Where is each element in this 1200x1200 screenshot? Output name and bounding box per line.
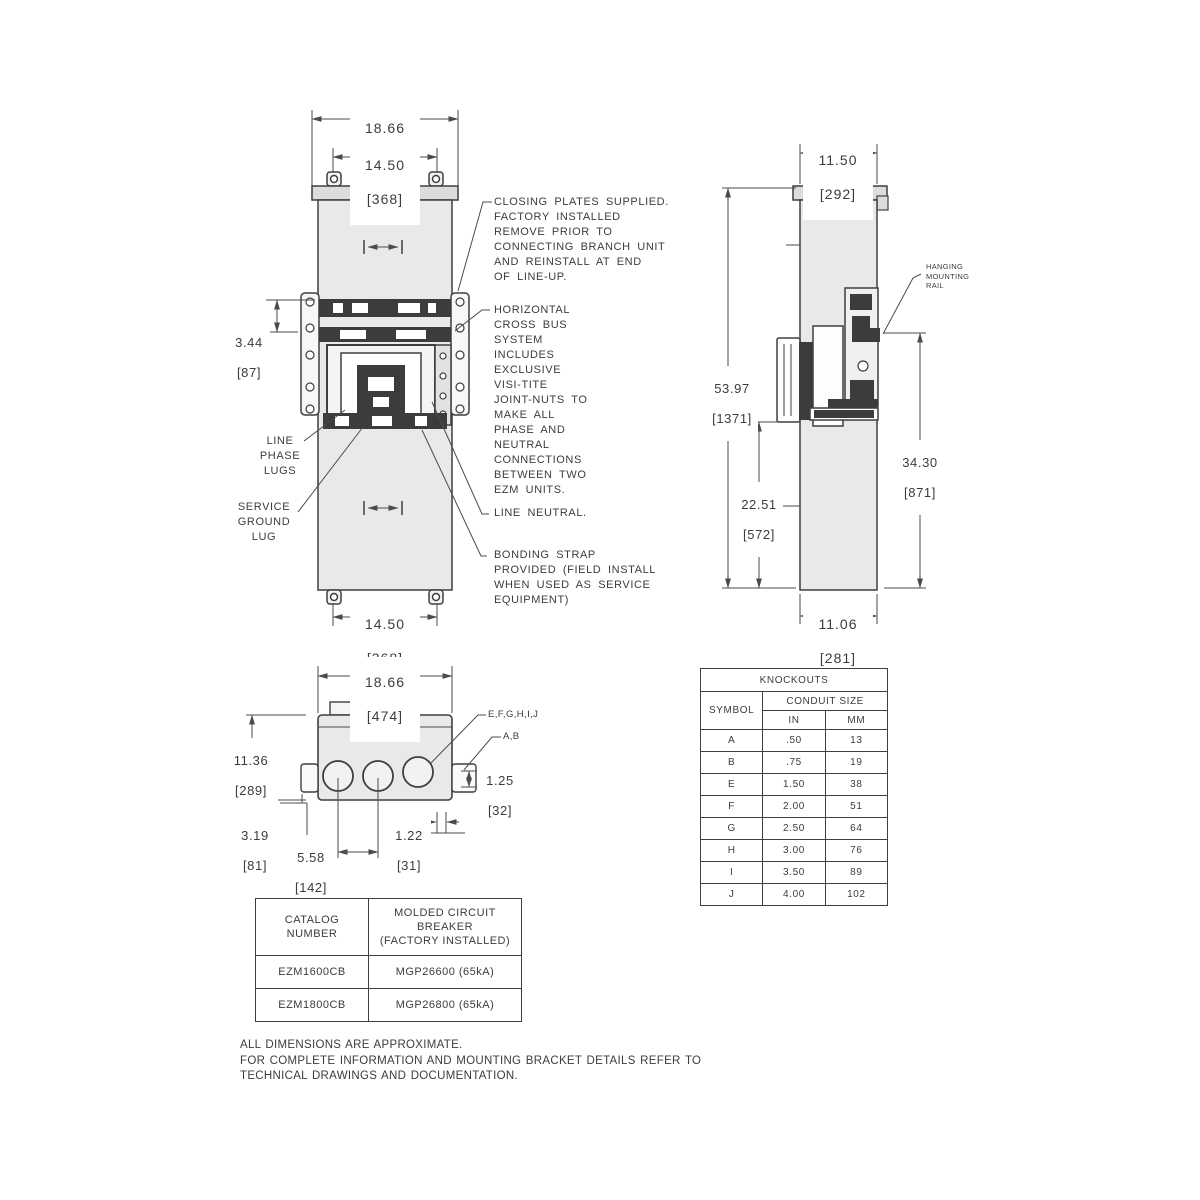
dim-inches: 34.30 <box>896 455 944 470</box>
dim-inches: 11.50 <box>803 152 873 169</box>
cell-in: 2.50 <box>763 818 825 840</box>
front-lug-dimension: 3.44 [87] <box>228 320 270 395</box>
cell-symbol: I <box>701 862 763 884</box>
bonding-strap-annotation: BONDING STRAP PROVIDED (FIELD INSTALL WH… <box>494 548 679 608</box>
topview-depth-dimension: 11.36 [289] <box>224 738 278 813</box>
topview-gap-dimension: 1.22 [31] <box>387 813 431 888</box>
dim-inches: 3.19 <box>233 828 277 843</box>
dim-inches: 18.66 <box>350 120 420 137</box>
cell-symbol: J <box>701 884 763 906</box>
table-row: EZM1600CB MGP26600 (65kA) <box>256 956 522 989</box>
side-depth-top-dimension: 11.50 [292] <box>803 135 873 220</box>
table-row: J 4.00 102 <box>701 884 888 906</box>
dim-mm: [281] <box>803 650 873 667</box>
table-row: H 3.00 76 <box>701 840 888 862</box>
dim-mm: [87] <box>228 365 270 380</box>
cell-mm: 102 <box>825 884 887 906</box>
line-phase-lugs-label: LINE PHASE LUGS <box>252 434 308 479</box>
col-header-symbol: SYMBOL <box>701 692 763 730</box>
line-neutral-annotation: LINE NEUTRAL. <box>494 506 614 521</box>
cell-mm: 38 <box>825 774 887 796</box>
side-rail-dimension: 34.30 [871] <box>896 440 944 515</box>
dim-inches: 53.97 <box>706 381 758 396</box>
cell-in: 3.00 <box>763 840 825 862</box>
cell-catalog-number: EZM1600CB <box>256 956 369 989</box>
knockouts-table: KNOCKOUTS SYMBOL CONDUIT SIZE IN MM A .5… <box>700 668 888 906</box>
dim-inches: 1.25 <box>482 773 518 788</box>
cell-in: 1.50 <box>763 774 825 796</box>
col-header-in: IN <box>763 711 825 730</box>
dim-inches: 11.36 <box>224 753 278 768</box>
table-row: A .50 13 <box>701 730 888 752</box>
cell-symbol: A <box>701 730 763 752</box>
cell-catalog-number: EZM1800CB <box>256 989 369 1022</box>
col-header-conduit-size: CONDUIT SIZE <box>763 692 888 711</box>
table-row: B .75 19 <box>701 752 888 774</box>
knockouts-title-row: KNOCKOUTS <box>701 669 888 692</box>
service-ground-lug-label: SERVICE GROUND LUG <box>230 500 298 545</box>
cell-in: .50 <box>763 730 825 752</box>
cross-bus-annotation: HORIZONTAL CROSS BUS SYSTEM INCLUDES EXC… <box>494 303 614 498</box>
topview-width-dimension: 18.66 [474] <box>350 657 420 742</box>
cell-in: .75 <box>763 752 825 774</box>
table-row: F 2.00 51 <box>701 796 888 818</box>
dim-inches: 3.44 <box>228 335 270 350</box>
dim-mm: [32] <box>482 803 518 818</box>
table-row: G 2.50 64 <box>701 818 888 840</box>
col-header-mm: MM <box>825 711 887 730</box>
col-header-breaker: MOLDED CIRCUIT BREAKER (FACTORY INSTALLE… <box>369 899 522 956</box>
catalog-table: CATALOG NUMBER MOLDED CIRCUIT BREAKER (F… <box>255 898 522 1022</box>
table-row: E 1.50 38 <box>701 774 888 796</box>
cell-breaker: MGP26600 (65kA) <box>369 956 522 989</box>
dim-inches: 11.06 <box>803 616 873 633</box>
dim-mm: [81] <box>233 858 277 873</box>
dim-inches: 1.22 <box>387 828 431 843</box>
dim-mm: [142] <box>287 880 335 895</box>
cell-symbol: B <box>701 752 763 774</box>
cell-mm: 19 <box>825 752 887 774</box>
dim-inches: 18.66 <box>350 674 420 691</box>
side-lower-dimension: 22.51 [572] <box>735 482 783 557</box>
dim-inches: 5.58 <box>287 850 335 865</box>
cell-mm: 76 <box>825 840 887 862</box>
cell-in: 3.50 <box>763 862 825 884</box>
cell-in: 2.00 <box>763 796 825 818</box>
small-knockouts-label: A,B <box>503 731 520 742</box>
cell-symbol: H <box>701 840 763 862</box>
topview-edge-dimension: 1.25 [32] <box>482 758 518 833</box>
drawing-notes: ALL DIMENSIONS ARE APPROXIMATE. FOR COMP… <box>240 1038 780 1085</box>
dim-mm: [871] <box>896 485 944 500</box>
front-mount-top-dimension: 14.50 [368] <box>350 140 420 225</box>
dim-inches: 14.50 <box>350 157 420 174</box>
closing-plates-annotation: CLOSING PLATES SUPPLIED. FACTORY INSTALL… <box>494 195 689 285</box>
cell-mm: 89 <box>825 862 887 884</box>
cell-mm: 51 <box>825 796 887 818</box>
col-header-catalog-number: CATALOG NUMBER <box>256 899 369 956</box>
dim-mm: [572] <box>735 527 783 542</box>
dim-mm: [1371] <box>706 411 758 426</box>
hanging-mounting-rail-label: HANGING MOUNTING RAIL <box>926 262 984 291</box>
dim-mm: [289] <box>224 783 278 798</box>
cell-symbol: G <box>701 818 763 840</box>
large-knockouts-label: E,F,G,H,I,J <box>488 709 538 720</box>
cell-mm: 64 <box>825 818 887 840</box>
dim-inches: 22.51 <box>735 497 783 512</box>
cell-breaker: MGP26800 (65kA) <box>369 989 522 1022</box>
table-row: I 3.50 89 <box>701 862 888 884</box>
knockouts-title: KNOCKOUTS <box>701 669 888 692</box>
cell-in: 4.00 <box>763 884 825 906</box>
technical-drawing-canvas: 18.66 [474] 14.50 [368] 3.44 [87] 14.50 … <box>0 0 1200 1200</box>
topview-offset-dimension: 3.19 [81] <box>233 813 277 888</box>
dim-mm: [474] <box>350 708 420 725</box>
cell-mm: 13 <box>825 730 887 752</box>
dim-mm: [31] <box>387 858 431 873</box>
table-row: EZM1800CB MGP26800 (65kA) <box>256 989 522 1022</box>
side-height-dimension: 53.97 [1371] <box>706 366 758 441</box>
cell-symbol: F <box>701 796 763 818</box>
cell-symbol: E <box>701 774 763 796</box>
dim-mm: [292] <box>803 186 873 203</box>
dim-inches: 14.50 <box>350 616 420 633</box>
dim-mm: [368] <box>350 191 420 208</box>
